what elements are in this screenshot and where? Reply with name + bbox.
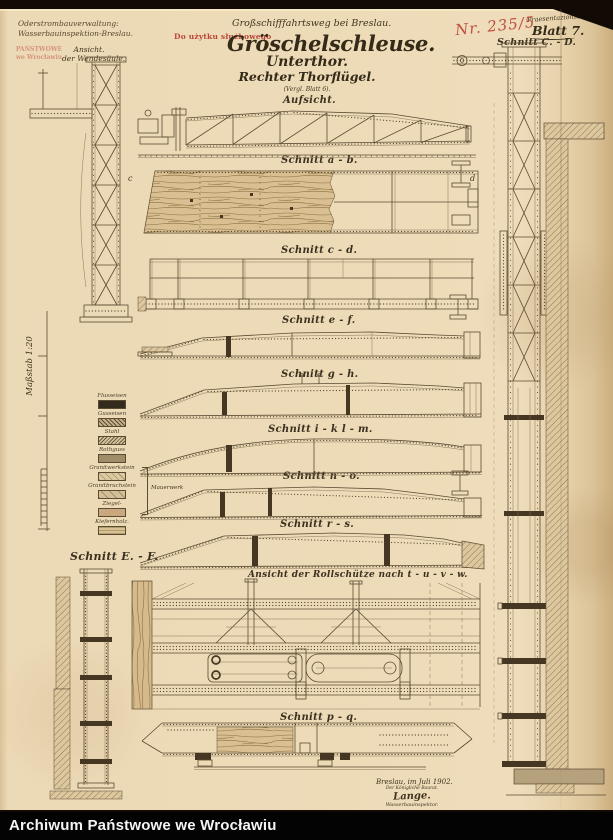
page-title: Gröschelschleuse. xyxy=(227,31,387,56)
handwritten-inventory-number: Nr. 235/5 xyxy=(454,13,536,39)
signature-block: Breslau, im Juli 1902. Der Königliche Ba… xyxy=(376,778,448,808)
legend-swatch-flusseisen xyxy=(98,400,126,409)
legend-swatch-ziegel xyxy=(98,508,126,517)
legend-swatch-kiefernholz xyxy=(98,526,126,535)
rollschuetze-drawing xyxy=(130,579,484,713)
schnitt-cd-drawing xyxy=(138,253,486,317)
office-line2: Wasserbauinspektion-Breslau. xyxy=(18,29,133,39)
schnitt-EF-drawing xyxy=(48,563,128,805)
wendesaeule-caption-line1: Ansicht. xyxy=(62,45,116,54)
schnitt-iklm-drawing xyxy=(132,431,486,477)
legend-swatch-granitwerkstein xyxy=(98,472,126,481)
issuing-office: Oderstrombauverwaltung: Wasserbauinspekt… xyxy=(18,19,133,39)
schnitt-ab-drawing xyxy=(130,163,484,245)
supertitle: Großschifffahrtsweg bei Breslau. xyxy=(232,18,382,29)
paper-crease xyxy=(560,9,562,810)
scale-label: Maßstab 1:20 xyxy=(25,322,35,410)
archive-caption-text: Archiwum Państwowe we Wrocławiu xyxy=(9,817,277,834)
subtitle-1: Unterthor. xyxy=(227,54,387,70)
legend-swatch-gusseisen xyxy=(98,418,126,427)
schnitt-gh-drawing xyxy=(132,375,486,423)
legend-swatch-stahl xyxy=(98,436,126,445)
schnitt-ef-drawing xyxy=(132,323,486,367)
legend-swatch-granitbruchstein xyxy=(98,490,126,499)
drawing-paper: Oderstrombauverwaltung: Wasserbauinspekt… xyxy=(0,9,613,810)
place-date: Breslau, im Juli 1902. xyxy=(376,778,448,786)
subtitle-2: Rechter Thorflügel. xyxy=(227,69,387,84)
schnitt-CD-drawing xyxy=(450,43,608,803)
office-line1: Oderstrombauverwaltung: xyxy=(18,19,133,29)
legend-swatch-rothguss xyxy=(98,454,126,463)
aufsicht-drawing xyxy=(132,103,484,161)
reference-note: (Vergl. Blatt 6). xyxy=(227,86,387,93)
schnitt-no-drawing xyxy=(132,479,486,521)
scanned-drawing-sheet: Oderstrombauverwaltung: Wasserbauinspekt… xyxy=(0,0,613,840)
archive-caption-bar: Archiwum Państwowe we Wrocławiu xyxy=(0,812,613,840)
schnitt-pq-drawing xyxy=(134,717,484,775)
scale-ruler xyxy=(38,311,58,536)
schnitt-rs-drawing xyxy=(132,525,486,573)
signer-role: Wasserbauinspektor. xyxy=(376,802,448,808)
section-label-E-F: Schnitt E. - F. xyxy=(70,550,158,563)
